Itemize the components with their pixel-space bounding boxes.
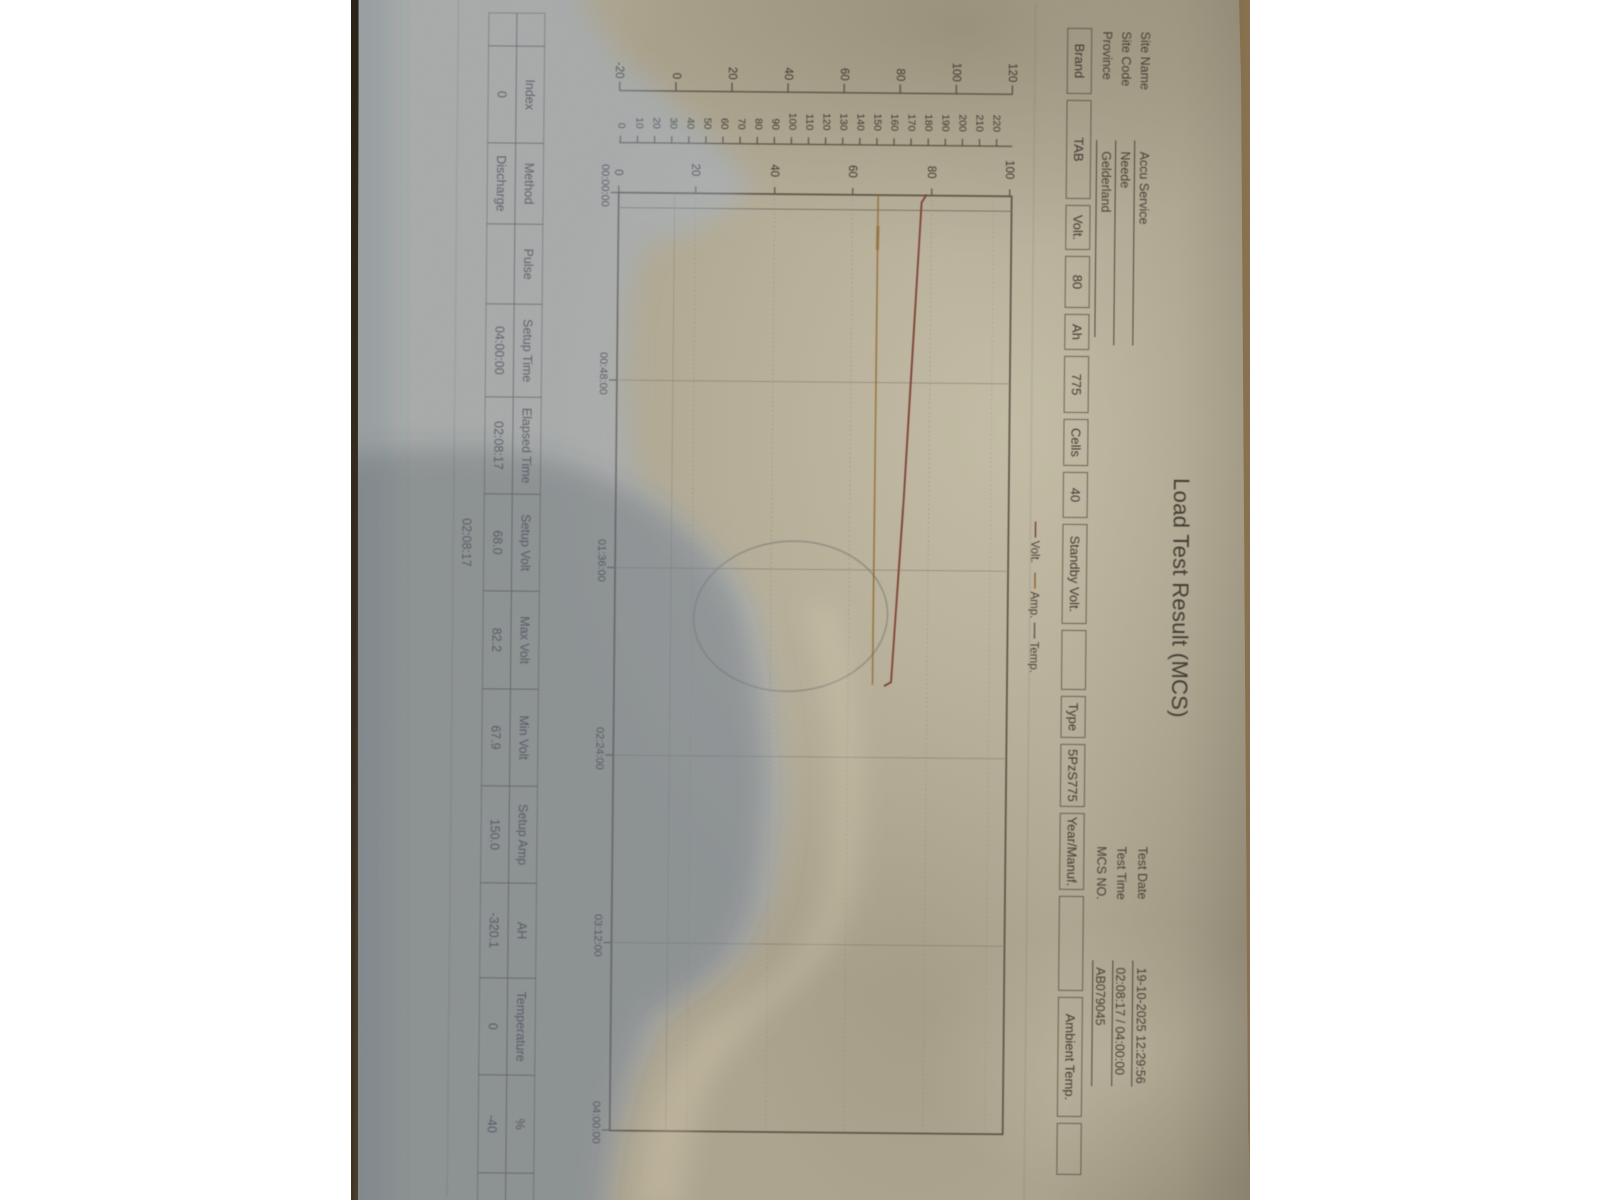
svg-text:210: 210 <box>973 114 985 132</box>
svg-text:150: 150 <box>871 113 883 131</box>
svg-text:140: 140 <box>854 113 866 131</box>
svg-text:100: 100 <box>950 63 962 82</box>
svg-text:170: 170 <box>905 114 917 132</box>
svg-text:80: 80 <box>925 166 937 179</box>
svg-text:90: 90 <box>769 118 781 130</box>
svg-text:00:48:00: 00:48:00 <box>597 352 609 395</box>
svg-text:0: 0 <box>670 73 682 80</box>
svg-text:220: 220 <box>990 115 1002 133</box>
svg-text:60: 60 <box>846 165 858 178</box>
svg-text:110: 110 <box>803 114 815 131</box>
svg-text:40: 40 <box>768 164 780 177</box>
svg-text:70: 70 <box>735 118 747 130</box>
svg-text:30: 30 <box>667 117 679 129</box>
svg-text:20: 20 <box>650 117 662 129</box>
svg-text:50: 50 <box>701 118 713 130</box>
svg-text:40: 40 <box>684 118 696 130</box>
svg-text:02:24:00: 02:24:00 <box>593 727 605 770</box>
svg-text:00:00:00: 00:00:00 <box>599 164 611 207</box>
svg-text:200: 200 <box>956 114 968 132</box>
svg-text:120: 120 <box>1006 63 1018 82</box>
svg-text:10: 10 <box>633 117 645 129</box>
svg-text:01:36:00: 01:36:00 <box>595 539 607 582</box>
svg-text:130: 130 <box>837 113 849 131</box>
svg-text:80: 80 <box>894 68 906 81</box>
svg-text:60: 60 <box>838 68 850 81</box>
svg-text:160: 160 <box>888 114 900 132</box>
svg-text:100: 100 <box>786 113 798 131</box>
svg-text:180: 180 <box>922 114 934 132</box>
svg-text:0: 0 <box>615 123 627 129</box>
svg-text:120: 120 <box>820 113 832 131</box>
svg-text:20: 20 <box>689 163 701 176</box>
svg-text:80: 80 <box>752 118 764 130</box>
svg-text:100: 100 <box>1003 160 1015 179</box>
svg-text:-20: -20 <box>613 62 625 79</box>
svg-text:190: 190 <box>939 114 951 132</box>
svg-text:40: 40 <box>782 67 794 80</box>
svg-text:03:12:00: 03:12:00 <box>591 914 603 957</box>
svg-text:20: 20 <box>726 67 738 80</box>
svg-text:04:00:00: 04:00:00 <box>590 1101 602 1144</box>
svg-text:60: 60 <box>718 118 730 130</box>
svg-text:0: 0 <box>612 169 624 176</box>
